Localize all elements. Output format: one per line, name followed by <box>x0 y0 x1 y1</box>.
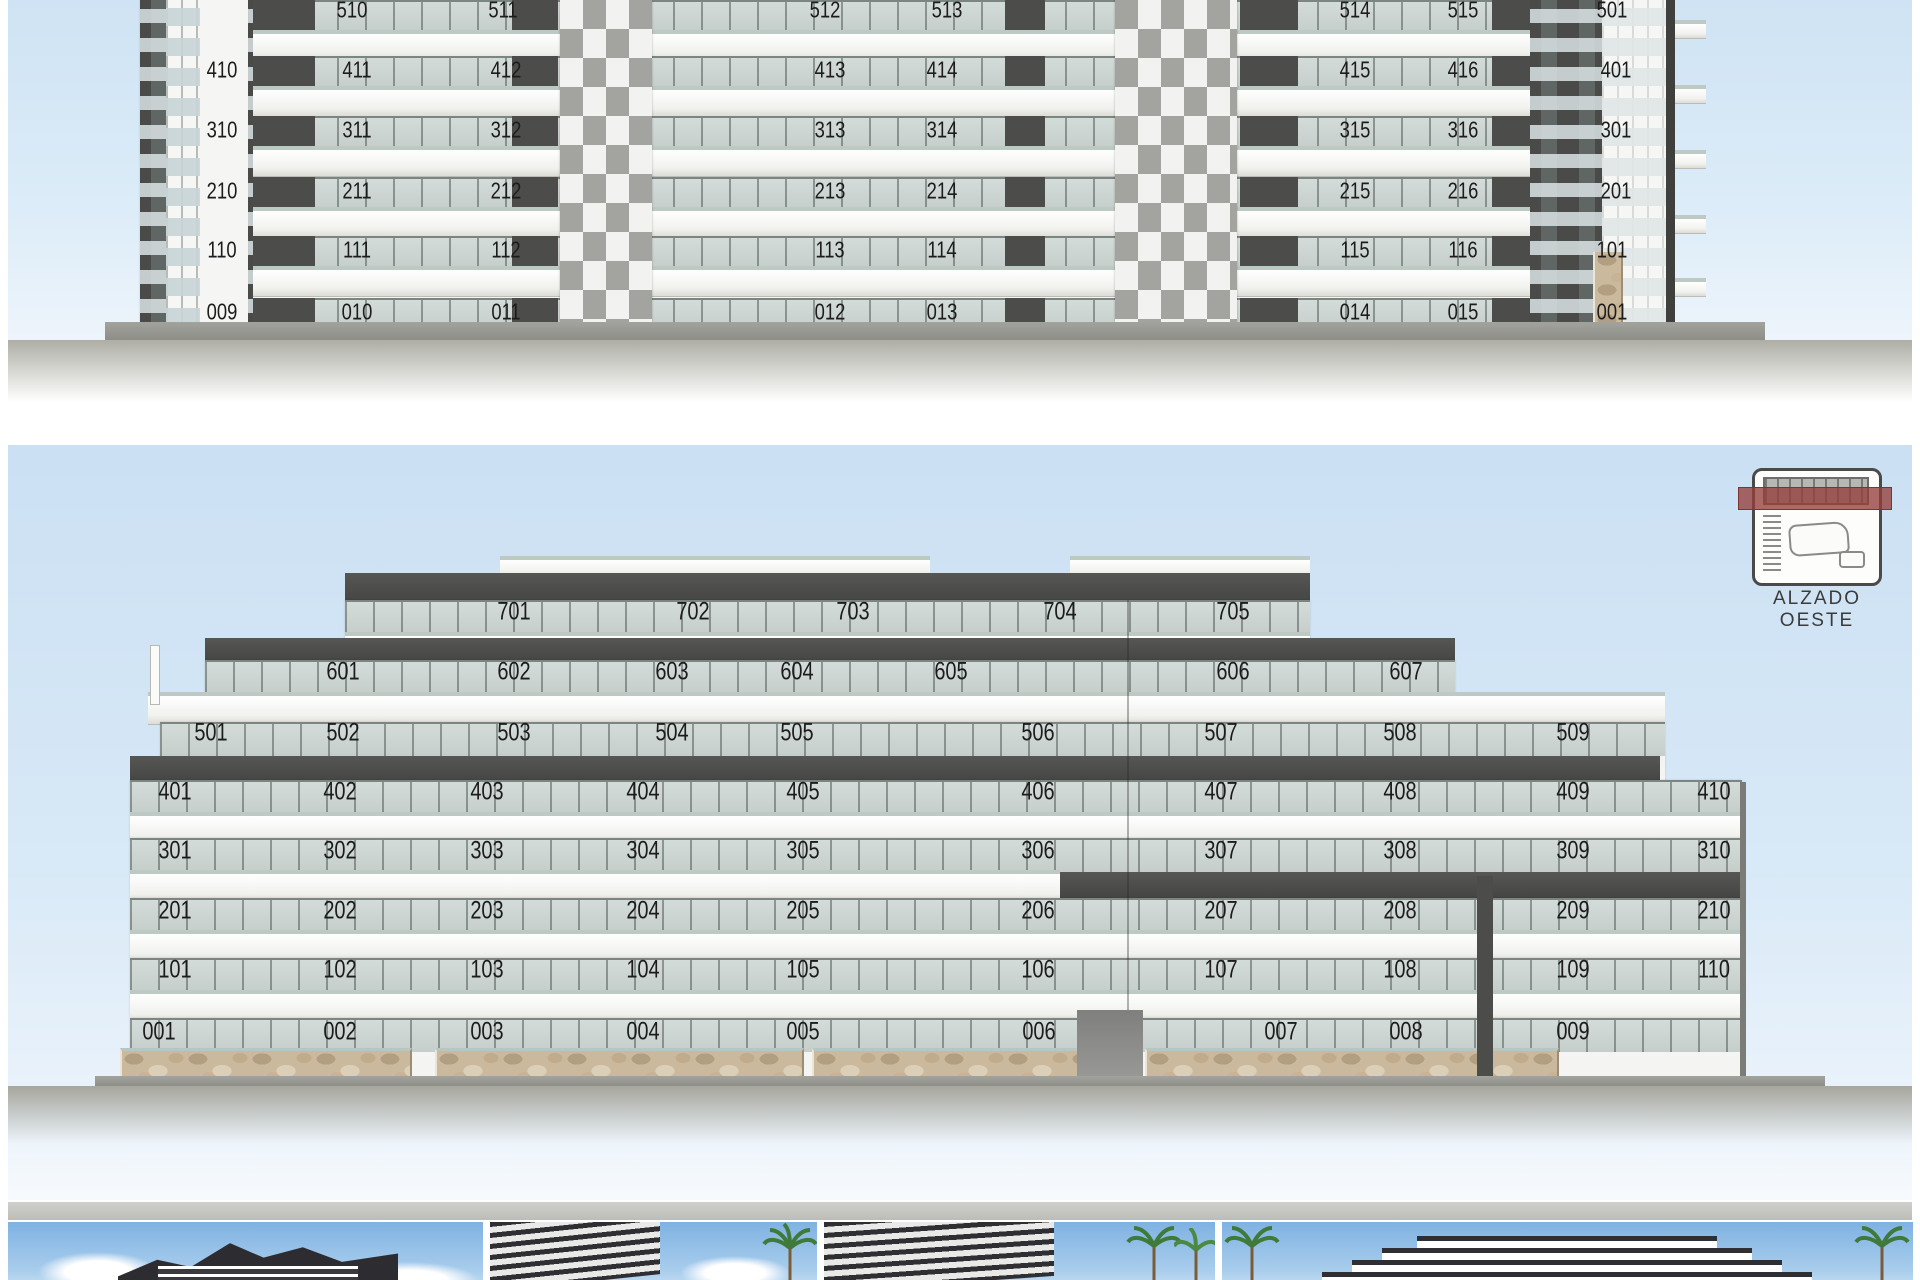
unit-number-label: 702 <box>676 598 709 627</box>
unit-number-label: 404 <box>626 778 659 807</box>
unit-number-label: 405 <box>786 778 819 807</box>
unit-number-label: 109 <box>1556 956 1589 985</box>
unit-number-label: 202 <box>323 897 356 926</box>
unit-number-label: 102 <box>323 956 356 985</box>
unit-number-label: 505 <box>780 719 813 748</box>
unit-number-label: 107 <box>1204 956 1237 985</box>
unit-number-label: 302 <box>323 837 356 866</box>
unit-number-label: 705 <box>1216 598 1249 627</box>
unit-number-label: 601 <box>326 658 359 687</box>
unit-number-label: 508 <box>1383 719 1416 748</box>
unit-number-label: 004 <box>626 1018 659 1047</box>
building-balcony-stripes <box>158 1266 358 1280</box>
unit-number-label: 201 <box>158 897 191 926</box>
unit-number-label: 205 <box>786 897 819 926</box>
unit-number-label: 101 <box>158 956 191 985</box>
unit-number-label: 504 <box>655 719 688 748</box>
unit-number-label: 008 <box>1389 1018 1422 1047</box>
unit-number-label: 301 <box>158 837 191 866</box>
unit-number-label: 305 <box>786 837 819 866</box>
unit-number-label: 605 <box>934 658 967 687</box>
unit-number-label: 304 <box>626 837 659 866</box>
west-elevation-unit-labels: 7017027037047056016026036046056066075015… <box>0 0 1920 1200</box>
unit-number-label: 509 <box>1556 719 1589 748</box>
unit-number-label: 206 <box>1021 897 1054 926</box>
palm-tree <box>762 1222 817 1280</box>
unit-number-label: 407 <box>1204 778 1237 807</box>
render-photo-3 <box>824 1222 1215 1280</box>
unit-number-label: 203 <box>470 897 503 926</box>
locator-car-shape <box>1839 551 1865 568</box>
unit-number-label: 401 <box>158 778 191 807</box>
locator-highlight-west-red-bar <box>1738 487 1892 510</box>
unit-number-label: 006 <box>1022 1018 1055 1047</box>
unit-number-label: 403 <box>470 778 503 807</box>
unit-number-label: 701 <box>497 598 530 627</box>
unit-number-label: 209 <box>1556 897 1589 926</box>
unit-number-label: 604 <box>780 658 813 687</box>
unit-number-label: 204 <box>626 897 659 926</box>
unit-number-label: 306 <box>1021 837 1054 866</box>
unit-number-label: 210 <box>1697 897 1730 926</box>
unit-number-label: 409 <box>1556 778 1589 807</box>
unit-number-label: 310 <box>1697 837 1730 866</box>
elevation-title: ALZADO OESTE <box>1742 588 1892 632</box>
unit-number-label: 110 <box>1698 956 1730 985</box>
locator-hatch <box>1763 515 1781 573</box>
unit-number-label: 005 <box>786 1018 819 1047</box>
palm-tree <box>1222 1222 1282 1280</box>
unit-number-label: 503 <box>497 719 530 748</box>
unit-number-label: 606 <box>1216 658 1249 687</box>
drawing-sheet: 5105115125135145155014104114124134144154… <box>0 0 1920 1280</box>
unit-number-label: 501 <box>194 719 227 748</box>
unit-number-label: 105 <box>786 956 819 985</box>
unit-number-label: 009 <box>1556 1018 1589 1047</box>
palm-tree <box>1174 1228 1215 1280</box>
render-photo-1 <box>8 1222 483 1280</box>
unit-number-label: 408 <box>1383 778 1416 807</box>
unit-number-label: 309 <box>1556 837 1589 866</box>
unit-number-label: 208 <box>1383 897 1416 926</box>
unit-number-label: 410 <box>1697 778 1730 807</box>
unit-number-label: 507 <box>1204 719 1237 748</box>
render-photo-4 <box>1222 1222 1913 1280</box>
unit-number-label: 502 <box>326 719 359 748</box>
photo-strip-separator <box>8 1202 1912 1220</box>
unit-number-label: 607 <box>1389 658 1422 687</box>
unit-number-label: 103 <box>470 956 503 985</box>
unit-number-label: 003 <box>470 1018 503 1047</box>
unit-number-label: 307 <box>1204 837 1237 866</box>
unit-number-label: 002 <box>323 1018 356 1047</box>
unit-number-label: 602 <box>497 658 530 687</box>
render-photo-2 <box>490 1222 817 1280</box>
unit-number-label: 406 <box>1021 778 1054 807</box>
building-floor <box>1322 1272 1812 1280</box>
unit-number-label: 703 <box>836 598 869 627</box>
unit-number-label: 603 <box>655 658 688 687</box>
unit-number-label: 704 <box>1043 598 1076 627</box>
unit-number-label: 007 <box>1264 1018 1297 1047</box>
unit-number-label: 001 <box>142 1018 175 1047</box>
unit-number-label: 402 <box>323 778 356 807</box>
unit-number-label: 104 <box>626 956 659 985</box>
unit-number-label: 303 <box>470 837 503 866</box>
unit-number-label: 106 <box>1021 956 1054 985</box>
unit-number-label: 308 <box>1383 837 1416 866</box>
unit-number-label: 506 <box>1021 719 1054 748</box>
unit-number-label: 207 <box>1204 897 1237 926</box>
unit-number-label: 108 <box>1383 956 1416 985</box>
building-facade <box>490 1222 660 1280</box>
site-locator-icon <box>1752 468 1882 586</box>
palm-tree <box>1852 1222 1912 1280</box>
building-facade <box>824 1222 1054 1280</box>
